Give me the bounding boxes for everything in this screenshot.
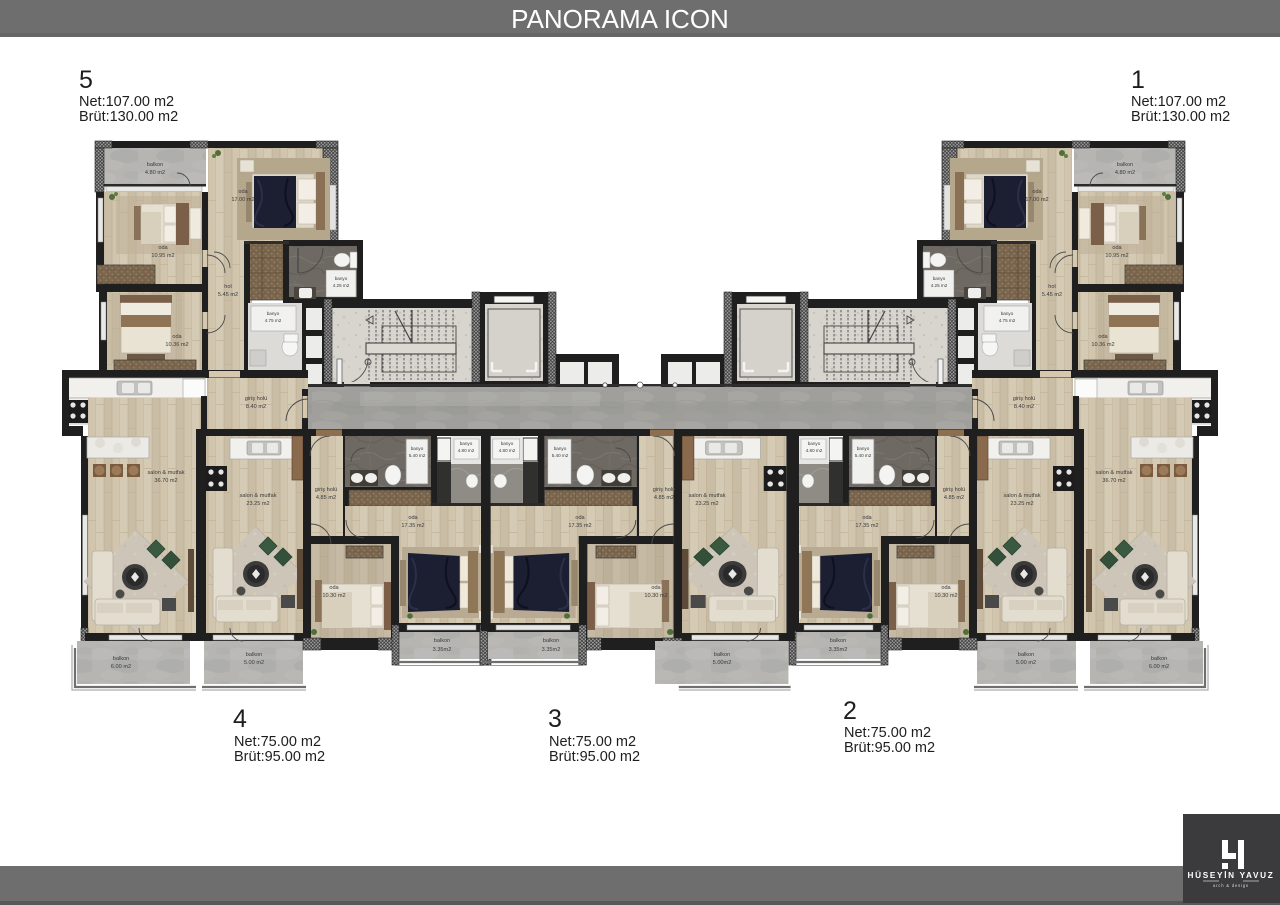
svg-text:10.30 m2: 10.30 m2 xyxy=(644,593,667,599)
svg-text:Net:75.00 m2: Net:75.00 m2 xyxy=(844,725,931,741)
svg-text:banyo: banyo xyxy=(857,446,870,451)
svg-text:balkon: balkon xyxy=(1117,162,1133,168)
svg-text:balkon: balkon xyxy=(1151,656,1167,662)
svg-text:oda: oda xyxy=(651,585,661,591)
svg-text:4.25 m2: 4.25 m2 xyxy=(931,283,948,288)
svg-text:giriş holü: giriş holü xyxy=(1013,396,1035,402)
svg-text:17.35 m2: 17.35 m2 xyxy=(855,523,878,529)
svg-text:oda: oda xyxy=(172,334,182,340)
svg-text:17.00 m2: 17.00 m2 xyxy=(231,197,254,203)
svg-text:17.35 m2: 17.35 m2 xyxy=(568,523,591,529)
svg-text:8.40 m2: 8.40 m2 xyxy=(1014,404,1034,410)
svg-text:1: 1 xyxy=(1131,66,1145,94)
svg-text:4.85 m2: 4.85 m2 xyxy=(654,495,674,501)
svg-text:4.80 m2: 4.80 m2 xyxy=(145,170,165,176)
svg-text:Net:75.00 m2: Net:75.00 m2 xyxy=(549,734,636,750)
svg-text:3.35m2: 3.35m2 xyxy=(542,647,561,653)
svg-text:HÜSEYİN YAVUZ: HÜSEYİN YAVUZ xyxy=(1187,870,1274,880)
svg-text:PANORAMA ICON: PANORAMA ICON xyxy=(511,4,729,34)
svg-text:balkon: balkon xyxy=(543,638,559,644)
svg-text:hol: hol xyxy=(224,284,231,290)
svg-text:23.25 m2: 23.25 m2 xyxy=(246,501,269,507)
svg-text:balkon: balkon xyxy=(714,652,730,658)
svg-text:3.35m2: 3.35m2 xyxy=(829,647,848,653)
svg-text:balkon: balkon xyxy=(246,652,262,658)
svg-text:banyo: banyo xyxy=(460,441,473,446)
svg-text:8.40 m2: 8.40 m2 xyxy=(246,404,266,410)
svg-text:hol: hol xyxy=(1048,284,1055,290)
svg-text:5.40 m2: 5.40 m2 xyxy=(409,453,426,458)
svg-text:5.45 m2: 5.45 m2 xyxy=(218,292,238,298)
svg-text:6.00 m2: 6.00 m2 xyxy=(111,664,131,670)
svg-text:giriş holü: giriş holü xyxy=(315,487,337,493)
svg-text:4.85 m2: 4.85 m2 xyxy=(944,495,964,501)
svg-text:10.30 m2: 10.30 m2 xyxy=(934,593,957,599)
svg-text:Brüt:130.00 m2: Brüt:130.00 m2 xyxy=(1131,109,1230,125)
svg-text:salon & mutfak: salon & mutfak xyxy=(148,470,185,476)
svg-text:oda: oda xyxy=(1112,245,1122,251)
svg-text:4.80 m2: 4.80 m2 xyxy=(1115,170,1135,176)
svg-text:10.95 m2: 10.95 m2 xyxy=(151,253,174,259)
svg-text:oda: oda xyxy=(575,515,585,521)
svg-text:Net:75.00 m2: Net:75.00 m2 xyxy=(234,734,321,750)
svg-text:4: 4 xyxy=(233,705,247,733)
svg-text:Brüt:95.00 m2: Brüt:95.00 m2 xyxy=(844,740,935,756)
svg-text:balkon: balkon xyxy=(113,656,129,662)
svg-text:banyo: banyo xyxy=(335,276,348,281)
svg-text:oda: oda xyxy=(329,585,339,591)
svg-text:banyo: banyo xyxy=(411,446,424,451)
svg-text:salon & mutfak: salon & mutfak xyxy=(240,493,277,499)
svg-text:10.36 m2: 10.36 m2 xyxy=(165,342,188,348)
svg-text:4.85 m2: 4.85 m2 xyxy=(316,495,336,501)
svg-text:oda: oda xyxy=(1032,189,1042,195)
svg-text:balkon: balkon xyxy=(434,638,450,644)
svg-text:banyo: banyo xyxy=(1001,311,1014,316)
svg-text:5.45 m2: 5.45 m2 xyxy=(1042,292,1062,298)
svg-text:banyo: banyo xyxy=(554,446,567,451)
svg-text:4.80 m2: 4.80 m2 xyxy=(806,448,823,453)
svg-text:5.40 m2: 5.40 m2 xyxy=(855,453,872,458)
svg-text:4.80 m2: 4.80 m2 xyxy=(499,448,516,453)
svg-text:banyo: banyo xyxy=(267,311,280,316)
svg-text:5: 5 xyxy=(79,66,93,94)
svg-text:Brüt:95.00 m2: Brüt:95.00 m2 xyxy=(549,749,640,765)
svg-text:Net:107.00 m2: Net:107.00 m2 xyxy=(1131,94,1226,110)
svg-text:banyo: banyo xyxy=(808,441,821,446)
svg-text:balkon: balkon xyxy=(1018,652,1034,658)
svg-text:3: 3 xyxy=(548,705,562,733)
svg-text:giriş holü: giriş holü xyxy=(653,487,675,493)
svg-text:5.00 m2: 5.00 m2 xyxy=(1016,660,1036,666)
svg-text:4.75 m2: 4.75 m2 xyxy=(265,318,282,323)
svg-text:2: 2 xyxy=(843,697,857,725)
svg-text:oda: oda xyxy=(238,189,248,195)
svg-text:salon & mutfak: salon & mutfak xyxy=(689,493,726,499)
svg-text:banyo: banyo xyxy=(933,276,946,281)
svg-text:balkon: balkon xyxy=(147,162,163,168)
svg-text:oda: oda xyxy=(158,245,168,251)
svg-text:giriş holü: giriş holü xyxy=(245,396,267,402)
svg-text:Net:107.00 m2: Net:107.00 m2 xyxy=(79,94,174,110)
svg-text:36.70 m2: 36.70 m2 xyxy=(1102,478,1125,484)
svg-text:giriş holü: giriş holü xyxy=(943,487,965,493)
svg-text:3.35m2: 3.35m2 xyxy=(433,647,452,653)
svg-text:17.35 m2: 17.35 m2 xyxy=(401,523,424,529)
svg-text:17.00 m2: 17.00 m2 xyxy=(1025,197,1048,203)
svg-text:oda: oda xyxy=(408,515,418,521)
svg-text:5.00m2: 5.00m2 xyxy=(713,660,732,666)
svg-text:arch & design: arch & design xyxy=(1213,883,1249,888)
svg-text:6.00 m2: 6.00 m2 xyxy=(1149,664,1169,670)
svg-text:10.36 m2: 10.36 m2 xyxy=(1091,342,1114,348)
svg-text:10.30 m2: 10.30 m2 xyxy=(322,593,345,599)
svg-text:oda: oda xyxy=(1098,334,1108,340)
svg-text:36.70 m2: 36.70 m2 xyxy=(154,478,177,484)
svg-text:oda: oda xyxy=(862,515,872,521)
svg-text:banyo: banyo xyxy=(501,441,514,446)
svg-text:4.80 m2: 4.80 m2 xyxy=(458,448,475,453)
svg-text:5.40 m2: 5.40 m2 xyxy=(552,453,569,458)
svg-text:Brüt:130.00 m2: Brüt:130.00 m2 xyxy=(79,109,178,125)
svg-text:oda: oda xyxy=(941,585,951,591)
svg-text:23.25 m2: 23.25 m2 xyxy=(1010,501,1033,507)
svg-text:5.00 m2: 5.00 m2 xyxy=(244,660,264,666)
svg-text:Brüt:95.00 m2: Brüt:95.00 m2 xyxy=(234,749,325,765)
svg-text:salon & mutfak: salon & mutfak xyxy=(1096,470,1133,476)
svg-text:10.95 m2: 10.95 m2 xyxy=(1105,253,1128,259)
svg-text:salon & mutfak: salon & mutfak xyxy=(1004,493,1041,499)
svg-text:4.25 m2: 4.25 m2 xyxy=(333,283,350,288)
svg-text:23.25 m2: 23.25 m2 xyxy=(695,501,718,507)
svg-text:balkon: balkon xyxy=(830,638,846,644)
svg-text:4.75 m2: 4.75 m2 xyxy=(999,318,1016,323)
